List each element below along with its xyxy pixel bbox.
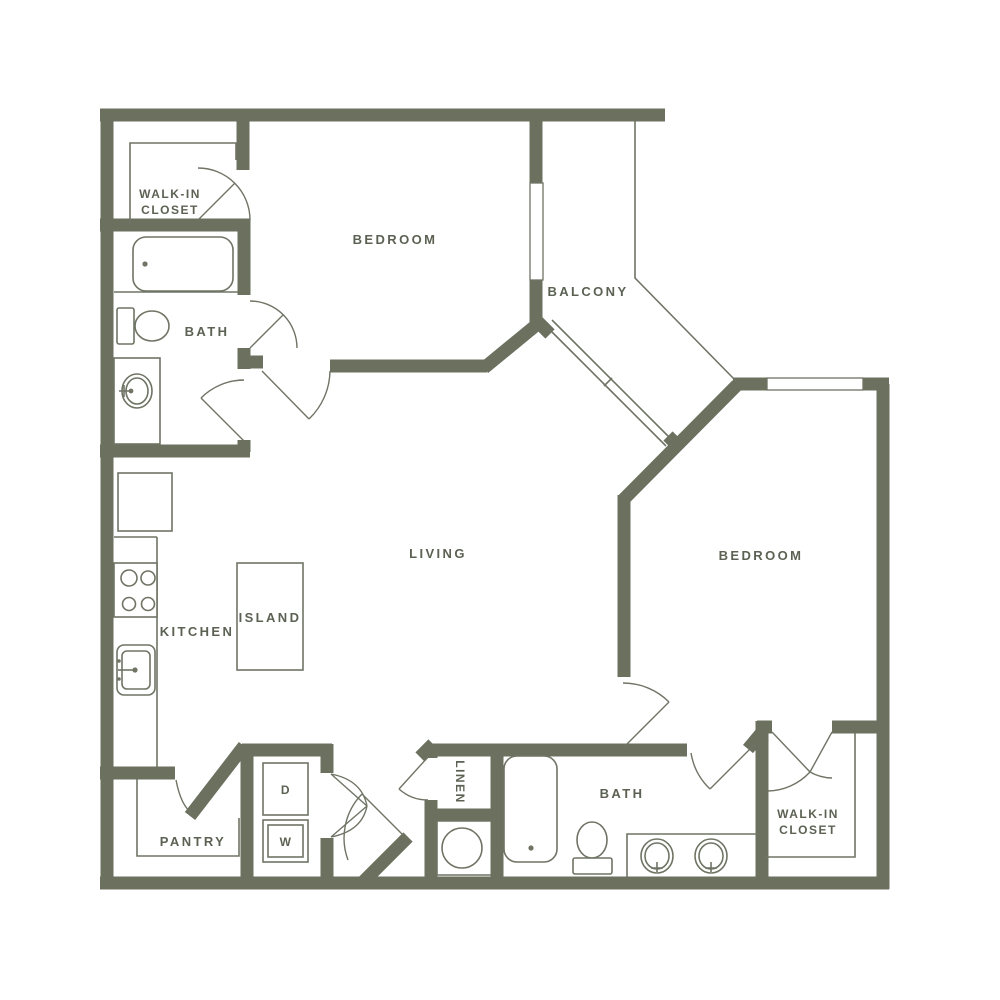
double-vanity-sinks xyxy=(641,839,727,873)
room-label-bedroom-top: BEDROOM xyxy=(353,232,438,247)
toilet-bottom xyxy=(573,822,612,874)
door-laundry-bifold xyxy=(331,774,367,837)
room-label-bath-bottom: BATH xyxy=(600,786,645,801)
toilet-top xyxy=(117,308,169,344)
room-label-linen: LINEN xyxy=(453,760,467,804)
balcony-railing xyxy=(635,121,736,381)
bathtub-top xyxy=(133,237,233,291)
door-walkin-closet-bottom xyxy=(767,732,832,791)
walk-in-closet-shelving xyxy=(763,733,855,857)
water-heater xyxy=(442,828,482,868)
label-dryer: D xyxy=(281,783,291,797)
kitchen-sink xyxy=(117,645,155,695)
door-bedroom-right xyxy=(623,683,669,748)
room-label-walkin-closet-bottom-line1: WALK-IN xyxy=(777,807,839,821)
door-bath-bottom xyxy=(691,744,755,789)
window-balcony xyxy=(530,183,543,280)
room-label-island: ISLAND xyxy=(239,610,302,625)
room-label-living: LIVING xyxy=(409,546,467,561)
room-label-balcony: BALCONY xyxy=(547,284,628,299)
door-walkin-closet-top xyxy=(198,168,250,220)
vanity-sink-top xyxy=(114,358,160,444)
door-bath-top-to-bedroom xyxy=(250,301,297,348)
floor-plan-page: WALK-IN CLOSET BEDROOM BALCONY BATH KITC… xyxy=(0,0,1000,1000)
room-label-kitchen: KITCHEN xyxy=(160,624,235,639)
room-label-walkin-closet-bottom-line2: CLOSET xyxy=(779,823,837,837)
door-bath-top-to-hall xyxy=(201,380,244,441)
refrigerator xyxy=(118,473,172,531)
room-label-bath-top: BATH xyxy=(185,324,230,339)
room-label-bedroom-right: BEDROOM xyxy=(719,548,804,563)
door-bedroom-top xyxy=(262,371,330,419)
bathtub-bottom xyxy=(504,756,557,862)
sliding-door xyxy=(546,320,672,446)
stove xyxy=(114,563,157,617)
door-linen xyxy=(399,757,428,800)
window-bedroom-right xyxy=(767,378,863,390)
floor-plan: WALK-IN CLOSET BEDROOM BALCONY BATH KITC… xyxy=(0,0,1000,1000)
walls-interior xyxy=(100,109,877,883)
room-label-walkin-closet-top-line2: CLOSET xyxy=(141,203,199,217)
label-washer: W xyxy=(280,835,293,849)
room-label-pantry: PANTRY xyxy=(160,834,226,849)
room-label-walkin-closet-top-line1: WALK-IN xyxy=(139,187,201,201)
